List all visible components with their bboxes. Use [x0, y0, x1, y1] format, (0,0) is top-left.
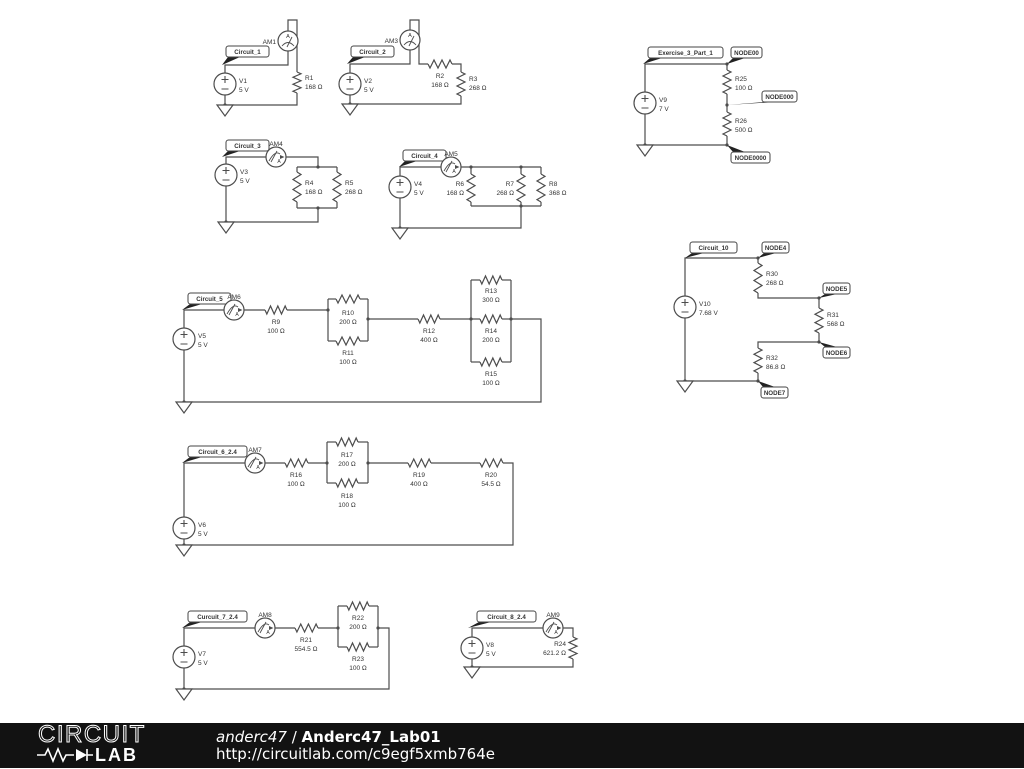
component-name: V9: [659, 97, 667, 104]
resistor-R17[interactable]: R17200 Ω: [336, 438, 358, 468]
resistor-R18[interactable]: R18100 Ω: [336, 479, 358, 509]
resistor-zigzag-icon: [480, 459, 503, 467]
resistor-R9[interactable]: R9100 Ω: [265, 306, 287, 335]
flag-label: Circuit_6_2.4: [198, 449, 237, 456]
voltage-source-V8[interactable]: V85 V: [461, 637, 496, 659]
component-name: R22: [352, 615, 364, 622]
component-value: 100 Ω: [482, 380, 500, 387]
voltage-source-V2[interactable]: V25 V: [339, 73, 374, 95]
circuit-flag-Circuit_3[interactable]: Circuit_3: [222, 140, 269, 157]
component-value: 268 Ω: [469, 85, 487, 92]
resistor-R16[interactable]: R16100 Ω: [285, 459, 308, 488]
component-name: R1: [305, 75, 314, 82]
ground-symbol[interactable]: [677, 381, 693, 392]
circuit-flag-Circuit_8_2.4[interactable]: Circuit_8_2.4: [468, 611, 536, 628]
ammeter-AM8[interactable]: AAM8: [255, 612, 275, 638]
flag-label: NODE7: [764, 390, 786, 397]
flag-tail: [468, 622, 491, 628]
wire: [184, 628, 255, 646]
ground-symbol[interactable]: [176, 402, 192, 413]
component-value: 500 Ω: [735, 127, 753, 134]
flag-tail: [758, 381, 775, 387]
voltage-source-V7[interactable]: V75 V: [173, 646, 208, 668]
resistor-R3[interactable]: R3268 Ω: [457, 72, 487, 96]
component-value: 268 Ω: [766, 280, 784, 287]
component-name: R23: [352, 656, 364, 663]
resistor-R24[interactable]: R24621.2 Ω: [543, 637, 577, 659]
component-name: R15: [485, 371, 497, 378]
component-value: 200 Ω: [349, 624, 367, 631]
node-flag-NODE4[interactable]: NODE4: [758, 242, 789, 258]
circuitlab-logo: CIRCUIT LAB: [36, 722, 186, 769]
wire: [758, 293, 819, 308]
logo-lab-text: LAB: [95, 745, 138, 764]
flag-tail: [182, 622, 202, 628]
ammeter-AM9[interactable]: AAM9: [543, 612, 563, 638]
wire: [685, 258, 758, 296]
wire: [563, 628, 573, 637]
resistor-zigzag-icon: [295, 624, 318, 632]
wire: [225, 93, 297, 105]
ammeter-A-icon: A: [286, 34, 290, 40]
node-flag-NODE6[interactable]: NODE6: [819, 342, 850, 358]
resistor-R15[interactable]: R15100 Ω: [480, 358, 502, 387]
ground-symbol[interactable]: [176, 545, 192, 556]
resistor-R12[interactable]: R12400 Ω: [418, 315, 440, 344]
component-value: 100 Ω: [735, 85, 753, 92]
component-name: V10: [699, 301, 711, 308]
resistor-zigzag-icon: [347, 602, 369, 610]
resistor-R1[interactable]: R1168 Ω: [293, 72, 323, 93]
flag-tail: [727, 58, 745, 64]
component-name: R31: [827, 312, 839, 319]
component-name: R7: [506, 181, 515, 188]
flag-tail: [758, 253, 776, 258]
voltage-source-V6[interactable]: V65 V: [173, 517, 208, 539]
resistor-zigzag-icon: [480, 358, 502, 366]
component-value: 5 V: [198, 342, 208, 349]
circuit-flag-Circuit_6_2.4[interactable]: Circuit_6_2.4: [182, 446, 247, 463]
component-value: 400 Ω: [420, 337, 438, 344]
component-value: 5 V: [198, 660, 208, 667]
component-name: V4: [414, 181, 422, 188]
ammeter-AM6[interactable]: AAM6: [224, 294, 244, 320]
logo-diode-bar-icon: [87, 749, 93, 761]
ground-symbol[interactable]: [464, 667, 480, 678]
component-name: V7: [198, 651, 206, 658]
node-flag-NODE00[interactable]: NODE00: [727, 47, 762, 64]
resistor-R19[interactable]: R19400 Ω: [408, 459, 431, 488]
component-value: 368 Ω: [549, 190, 567, 197]
resistor-zigzag-icon: [537, 174, 545, 202]
ammeter-AM7[interactable]: AAM7: [245, 447, 265, 473]
component-name: V1: [239, 78, 247, 85]
wire: [226, 208, 318, 222]
component-name: AM6: [227, 294, 241, 301]
component-value: 100 Ω: [349, 665, 367, 672]
component-value: 100 Ω: [287, 481, 305, 488]
junction-dot: [376, 626, 379, 629]
wire: [286, 157, 318, 167]
flag-label: NODE00: [734, 50, 759, 57]
resistor-R31[interactable]: R31568 Ω: [815, 308, 845, 333]
component-name: V2: [364, 78, 372, 85]
wire: [400, 167, 441, 176]
component-name: R30: [766, 271, 778, 278]
circuit-flag-Circuit_5[interactable]: Circuit_5: [182, 293, 231, 310]
component-value: 268 Ω: [345, 189, 363, 196]
ground-symbol[interactable]: [217, 105, 233, 116]
footer-caption: anderc47 / Anderc47_Lab01: [216, 729, 495, 746]
flag-label: NODE000: [765, 94, 794, 101]
component-name: R5: [345, 180, 354, 187]
component-value: 168 Ω: [305, 84, 323, 91]
component-name: R17: [341, 452, 353, 459]
wire: [645, 136, 727, 145]
resistor-R22[interactable]: R22200 Ω: [347, 602, 369, 631]
component-name: AM4: [269, 141, 283, 148]
resistor-R23[interactable]: R23100 Ω: [347, 643, 369, 672]
component-name: V3: [240, 169, 248, 176]
logo-resistor-icon: [37, 749, 74, 761]
component-name: R21: [300, 637, 312, 644]
resistor-R8[interactable]: R8368 Ω: [537, 174, 567, 202]
component-name: R6: [456, 181, 465, 188]
resistor-zigzag-icon: [285, 459, 308, 467]
junction-dot: [469, 317, 472, 320]
voltage-source-V9[interactable]: V97 V: [634, 92, 669, 114]
circuit-flag-Circuit_10[interactable]: Circuit_10: [685, 242, 737, 258]
ground-symbol[interactable]: [637, 145, 653, 156]
footer-separator: /: [287, 728, 302, 746]
wire: [184, 310, 224, 328]
circuit-flag-Circuit_1[interactable]: Circuit_1: [222, 46, 269, 65]
resistor-zigzag-icon: [408, 459, 431, 467]
flag-tail: [222, 151, 240, 157]
component-name: AM9: [546, 612, 560, 619]
component-value: 200 Ω: [482, 337, 500, 344]
flag-tail: [182, 304, 202, 310]
resistor-zigzag-icon: [336, 479, 358, 487]
resistor-zigzag-icon: [723, 112, 731, 136]
resistor-R10[interactable]: R10200 Ω: [336, 295, 360, 326]
flag-label: Circuit_2: [359, 49, 386, 56]
junction-dot: [519, 204, 522, 207]
resistor-zigzag-icon: [347, 643, 369, 651]
component-name: V8: [486, 642, 494, 649]
resistor-zigzag-icon: [336, 438, 358, 446]
voltage-source-V10[interactable]: V107.68 V: [674, 296, 718, 318]
component-name: R32: [766, 355, 778, 362]
component-name: R26: [735, 118, 747, 125]
flag-label: NODE0000: [735, 155, 767, 162]
component-value: 5 V: [240, 178, 250, 185]
resistor-zigzag-icon: [293, 172, 301, 202]
node-flag-NODE5[interactable]: NODE5: [819, 283, 850, 298]
junction-dot: [326, 308, 329, 311]
resistor-zigzag-icon: [754, 263, 762, 293]
component-name: V5: [198, 333, 206, 340]
resistor-zigzag-icon: [467, 174, 475, 202]
component-name: AM5: [444, 151, 458, 158]
flag-label: NODE4: [765, 245, 787, 252]
component-value: 5 V: [239, 87, 249, 94]
component-name: R3: [469, 76, 478, 83]
component-value: 5 V: [414, 190, 424, 197]
resistor-zigzag-icon: [293, 72, 301, 93]
component-name: R25: [735, 76, 747, 83]
junction-dot: [325, 461, 328, 464]
component-value: 5 V: [198, 531, 208, 538]
component-name: AM1: [263, 39, 277, 46]
component-name: R18: [341, 493, 353, 500]
resistor-zigzag-icon: [517, 174, 525, 202]
resistor-zigzag-icon: [815, 308, 823, 333]
footer-bar: CIRCUIT LAB anderc47 / Anderc47_Lab01 ht…: [0, 723, 1024, 768]
flag-tail: [347, 57, 365, 64]
component-value: 7 V: [659, 106, 669, 113]
component-value: 621.2 Ω: [543, 650, 566, 657]
flag-tail: [819, 294, 837, 298]
voltage-source-V5[interactable]: V55 V: [173, 328, 208, 350]
resistor-R21[interactable]: R21554.5 Ω: [295, 624, 318, 653]
ground-symbol[interactable]: [176, 689, 192, 700]
component-value: 5 V: [364, 87, 374, 94]
component-name: R24: [554, 641, 566, 648]
flag-label: Circuit_8_2.4: [487, 614, 526, 621]
component-value: 168 Ω: [305, 189, 323, 196]
footer-author: anderc47: [216, 728, 287, 746]
resistor-R20[interactable]: R2054.5 Ω: [480, 459, 503, 488]
voltage-source-V1[interactable]: V15 V: [214, 73, 249, 95]
wire: [350, 96, 461, 104]
resistor-R30[interactable]: R30268 Ω: [754, 263, 784, 293]
resistor-zigzag-icon: [428, 60, 452, 68]
voltage-source-V4[interactable]: V45 V: [389, 176, 424, 198]
flag-tail: [182, 457, 202, 463]
junction-dot: [316, 206, 319, 209]
resistor-R4[interactable]: R4168 Ω: [293, 172, 323, 202]
wire: [184, 463, 245, 517]
component-value: 300 Ω: [482, 297, 500, 304]
resistor-zigzag-icon: [480, 276, 502, 284]
node-flag-NODE7[interactable]: NODE7: [758, 381, 788, 398]
component-name: R10: [342, 310, 354, 317]
component-value: 554.5 Ω: [295, 646, 318, 653]
component-value: 7.68 V: [699, 310, 718, 317]
wire: [400, 206, 521, 228]
resistor-zigzag-icon: [333, 172, 341, 202]
flag-tail: [685, 253, 704, 258]
flag-tail: [819, 342, 837, 347]
circuit-flag-Curcuit_7_2.4[interactable]: Curcuit_7_2.4: [182, 611, 247, 628]
ground-symbol[interactable]: [342, 104, 358, 115]
resistor-zigzag-icon: [754, 348, 762, 373]
circuit-flag-Circuit_4[interactable]: Circuit_4: [399, 150, 446, 167]
junction-dot: [519, 165, 522, 168]
ammeter-AM4[interactable]: AAM4: [266, 141, 286, 167]
wire: [452, 64, 461, 72]
circuit-flag-Circuit_2[interactable]: Circuit_2: [347, 46, 394, 64]
ammeter-A-icon: A: [408, 33, 412, 39]
resistor-zigzag-icon: [569, 637, 577, 659]
resistor-zigzag-icon: [265, 306, 287, 314]
resistor-R14[interactable]: R14200 Ω: [480, 315, 502, 344]
component-name: R4: [305, 180, 314, 187]
junction-dot: [336, 626, 339, 629]
ground-symbol[interactable]: [392, 228, 408, 239]
component-value: 100 Ω: [338, 502, 356, 509]
footer-url[interactable]: http://circuitlab.com/c9egf5xmb764e: [216, 746, 495, 763]
resistor-zigzag-icon: [457, 72, 465, 96]
flag-tail: [222, 57, 240, 65]
component-value: 86.8 Ω: [766, 364, 785, 371]
ground-symbol[interactable]: [218, 222, 234, 233]
resistor-R7[interactable]: R7268 Ω: [496, 174, 525, 202]
node-flag-NODE0000[interactable]: NODE0000: [727, 145, 770, 163]
flag-label: Circuit_10: [699, 245, 729, 252]
component-name: R8: [549, 181, 558, 188]
component-name: AM3: [385, 38, 399, 45]
resistor-zigzag-icon: [336, 295, 360, 303]
component-value: 100 Ω: [339, 359, 357, 366]
component-name: R2: [436, 73, 445, 80]
footer-title: Anderc47_Lab01: [302, 728, 441, 746]
resistor-R13[interactable]: R13300 Ω: [480, 276, 502, 304]
flag-label: Circuit_5: [196, 296, 223, 303]
flag-label: NODE5: [826, 286, 848, 293]
component-name: R19: [413, 472, 425, 479]
component-value: 568 Ω: [827, 321, 845, 328]
flag-label: Exercise_3_Part_1: [658, 50, 713, 57]
junction-dot: [469, 165, 472, 168]
ammeter-AM5[interactable]: AAM5: [441, 151, 461, 177]
resistor-zigzag-icon: [336, 337, 360, 345]
component-name: V6: [198, 522, 206, 529]
component-name: R14: [485, 328, 497, 335]
resistor-zigzag-icon: [418, 315, 440, 323]
flag-label: Circuit_1: [234, 49, 261, 56]
component-name: AM8: [258, 612, 272, 619]
component-value: 168 Ω: [446, 190, 464, 197]
junction-dot: [316, 165, 319, 168]
component-name: R13: [485, 288, 497, 295]
resistor-zigzag-icon: [480, 315, 502, 323]
flag-label: Circuit_3: [234, 143, 261, 150]
component-value: 400 Ω: [410, 481, 428, 488]
junction-dot: [366, 461, 369, 464]
resistor-zigzag-icon: [723, 70, 731, 94]
logo-diode-icon: [76, 749, 87, 761]
resistor-R5[interactable]: R5268 Ω: [333, 172, 363, 202]
component-name: R16: [290, 472, 302, 479]
component-value: 200 Ω: [338, 461, 356, 468]
component-name: AM7: [248, 447, 262, 454]
wire: [645, 64, 727, 92]
component-value: 54.5 Ω: [481, 481, 500, 488]
voltage-source-V3[interactable]: V35 V: [215, 164, 250, 186]
wire: [758, 333, 819, 348]
resistor-R32[interactable]: R3286.8 Ω: [754, 348, 785, 373]
resistor-R11[interactable]: R11100 Ω: [336, 337, 360, 366]
component-name: R11: [342, 350, 354, 357]
component-value: 268 Ω: [496, 190, 514, 197]
junction-dot: [366, 317, 369, 320]
circuit-flag-Exercise_3_Part_1[interactable]: Exercise_3_Part_1: [643, 47, 723, 64]
flag-label: Circuit_4: [411, 153, 438, 160]
resistor-R2[interactable]: R2168 Ω: [428, 60, 452, 89]
flag-label: NODE6: [826, 350, 848, 357]
flag-label: Curcuit_7_2.4: [197, 614, 238, 621]
component-value: 100 Ω: [267, 328, 285, 335]
wire: [472, 659, 573, 667]
flag-tail: [727, 145, 745, 152]
node-flag-NODE000[interactable]: NODE000: [727, 91, 797, 105]
component-value: 5 V: [486, 651, 496, 658]
wire: [226, 157, 266, 164]
component-value: 200 Ω: [339, 319, 357, 326]
schematic-canvas[interactable]: Circuit_1V15 VAAM1R1168 ΩCircuit_2V25 VA…: [0, 0, 1024, 723]
resistor-R26[interactable]: R26500 Ω: [723, 112, 753, 136]
component-value: 168 Ω: [431, 82, 449, 89]
component-name: R9: [272, 319, 281, 326]
flag-tail: [643, 58, 662, 64]
resistor-R6[interactable]: R6168 Ω: [446, 174, 475, 202]
component-name: R20: [485, 472, 497, 479]
wire: [685, 373, 758, 381]
wire: [472, 628, 543, 637]
component-name: R12: [423, 328, 435, 335]
junction-dot: [509, 317, 512, 320]
resistor-R25[interactable]: R25100 Ω: [723, 70, 753, 94]
flag-tail: [399, 161, 417, 167]
